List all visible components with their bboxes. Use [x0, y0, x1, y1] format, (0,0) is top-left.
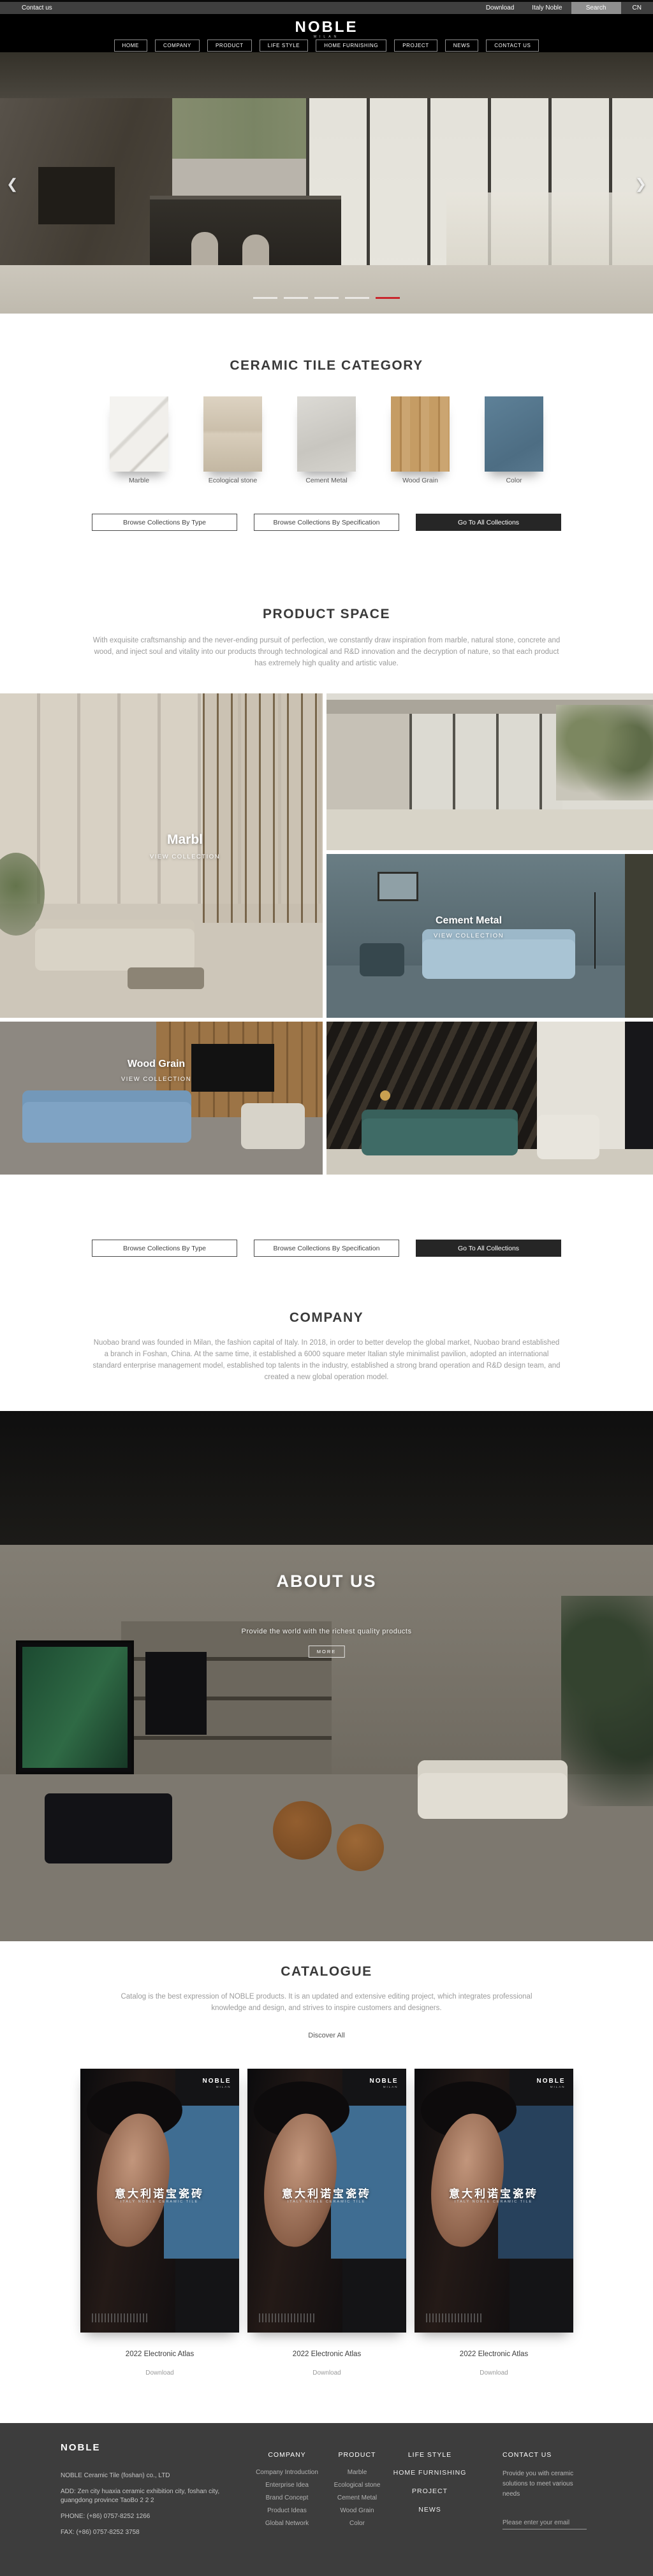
product-space-title: PRODUCT SPACE [0, 607, 653, 622]
poster-headline: 意大利诺宝瓷砖 [247, 2185, 406, 2201]
footer-header-life-style[interactable]: LIFE STYLE [383, 2451, 477, 2459]
browse-by-type-button[interactable]: Browse Collections By Type [92, 514, 237, 531]
tile-label-ecological-stone: Ecological stone [203, 477, 262, 484]
noble-logo[interactable]: NOBLE [0, 20, 653, 35]
card-concrete-wall [326, 714, 409, 809]
poster-brand-sub: MILAN [216, 2085, 231, 2088]
card-coffee-table [128, 967, 204, 989]
poster-barcode [259, 2313, 316, 2322]
poster-brand: NOBLE [370, 2078, 399, 2085]
card-chair [360, 943, 404, 976]
nav-contact-us[interactable]: CONTACT US [486, 40, 539, 52]
discover-all-link[interactable]: Discover All [0, 2032, 653, 2039]
view-collection-link[interactable]: VIEW COLLECTION [434, 932, 504, 939]
tile-label-wood-grain: Wood Grain [391, 477, 450, 484]
about-tv-screen-small [145, 1652, 207, 1735]
about-sofa [418, 1760, 568, 1819]
card-tv [191, 1044, 274, 1092]
poster-headline: 意大利诺宝瓷砖 [80, 2185, 239, 2201]
card-floor-lamp [594, 892, 596, 969]
card-sofa [35, 920, 194, 971]
company-description: Nuobao brand was founded in Milan, the f… [91, 1337, 562, 1383]
card-glass-wall [409, 714, 562, 809]
poster-subline: ITALY NOBLE CERAMIC TILE [80, 2200, 239, 2204]
category-tile-wood-grain[interactable] [391, 396, 450, 472]
site-header: NOBLE MILAN HOME COMPANY PRODUCT LIFE ST… [0, 14, 653, 52]
about-us-caption: Provide the world with the richest quali… [0, 1628, 653, 1635]
footer-fax: FAX: (+86) 0757-8252 3758 [61, 2528, 220, 2537]
go-to-all-collections-button[interactable]: Go To All Collections [416, 1240, 561, 1257]
carousel-dot[interactable] [284, 297, 308, 299]
catalogue-item-title: 2022 Electronic Atlas [80, 2350, 239, 2358]
poster-headline: 意大利诺宝瓷砖 [415, 2185, 573, 2201]
category-tile-ecological-stone[interactable] [203, 396, 262, 472]
catalogue-poster-row: NOBLE MILAN 意大利诺宝瓷砖 ITALY NOBLE CERAMIC … [0, 2069, 653, 2333]
italy-noble-link[interactable]: Italy Noble [523, 4, 571, 11]
language-toggle-cn[interactable]: CN [621, 4, 653, 11]
about-us-title: ABOUT US [0, 1572, 653, 1591]
product-space-card-dark-slat[interactable] [326, 1022, 653, 1175]
product-space-card-exterior[interactable] [326, 693, 653, 850]
footer-logo[interactable]: NOBLE [61, 2442, 101, 2453]
download-link[interactable]: Download [477, 4, 523, 11]
company-title: COMPANY [0, 1310, 653, 1326]
poster-blue-panel [164, 2106, 239, 2259]
view-collection-link[interactable]: VIEW COLLECTION [121, 1076, 191, 1083]
about-coffee-table [273, 1801, 332, 1860]
about-coffee-table [337, 1824, 384, 1871]
category-tile-color[interactable] [485, 396, 543, 472]
ceramic-tile-category-title: CERAMIC TILE CATEGORY [0, 358, 653, 373]
nav-life-style[interactable]: LIFE STYLE [260, 40, 308, 52]
nav-home-furnishing[interactable]: HOME FURNISHING [316, 40, 386, 52]
footer-header-contact-us[interactable]: CONTACT US [503, 2451, 592, 2459]
footer-link-project[interactable]: PROJECT [383, 2487, 477, 2495]
poster-subline: ITALY NOBLE CERAMIC TILE [247, 2200, 406, 2204]
poster-brand: NOBLE [537, 2078, 566, 2085]
footer-address: ADD: Zen city huaxia ceramic exhibition … [61, 2487, 220, 2505]
footer-link-news[interactable]: NEWS [383, 2506, 477, 2514]
carousel-dot[interactable] [314, 297, 339, 299]
product-space-card-wood-grain[interactable]: Wood Grain VIEW COLLECTION [0, 1022, 323, 1175]
view-collection-link[interactable]: VIEW COLLECTION [150, 853, 220, 860]
noble-logo-subtitle: MILAN [0, 35, 653, 39]
carousel-prev-icon[interactable]: ❮ [6, 177, 18, 191]
card-label-wood-grain: Wood Grain [121, 1059, 191, 1070]
catalogue-item-title: 2022 Electronic Atlas [247, 2350, 406, 2358]
product-space-description: With exquisite craftsmanship and the nev… [91, 635, 562, 669]
carousel-pagination [0, 297, 653, 299]
category-tile-cement-metal[interactable] [297, 396, 356, 472]
poster-brand-sub: MILAN [550, 2085, 566, 2088]
poster-barcode [92, 2313, 149, 2322]
hero-image-outdoor [446, 192, 653, 265]
footer-column-life-style: LIFE STYLE HOME FURNISHING PROJECT NEWS [383, 2451, 477, 2524]
poster-subline: ITALY NOBLE CERAMIC TILE [415, 2200, 573, 2204]
main-nav: HOME COMPANY PRODUCT LIFE STYLE HOME FUR… [0, 40, 653, 52]
footer-company-line: NOBLE Ceramic Tile (foshan) co., LTD [61, 2471, 220, 2480]
collection-buttons-row-1: Browse Collections By Type Browse Collec… [0, 514, 653, 531]
card-sofa [22, 1090, 191, 1143]
browse-by-type-button[interactable]: Browse Collections By Type [92, 1240, 237, 1257]
about-tv-screen [16, 1640, 134, 1774]
nav-product[interactable]: PRODUCT [207, 40, 252, 52]
catalogue-poster-3[interactable]: NOBLE MILAN 意大利诺宝瓷砖 ITALY NOBLE CERAMIC … [415, 2069, 573, 2333]
poster-blue-panel [331, 2106, 406, 2259]
catalogue-item-title: 2022 Electronic Atlas [415, 2350, 573, 2358]
poster-navy-panel [498, 2106, 573, 2259]
category-tile-labels: Marble Ecological stone Cement Metal Woo… [0, 477, 653, 484]
footer-column-contact: CONTACT US Provide you with ceramic solu… [503, 2451, 592, 2529]
catalogue-poster-2[interactable]: NOBLE MILAN 意大利诺宝瓷砖 ITALY NOBLE CERAMIC … [247, 2069, 406, 2333]
card-column [625, 854, 653, 1018]
poster-brand-sub: MILAN [383, 2085, 399, 2088]
category-tile-marble[interactable] [110, 396, 168, 472]
go-to-all-collections-button[interactable]: Go To All Collections [416, 514, 561, 531]
hero-image-stool [191, 232, 218, 269]
hero-image-ceiling [0, 52, 653, 98]
card-chair [537, 1115, 599, 1159]
hero-carousel: ❮ ❯ [0, 52, 653, 314]
nav-news[interactable]: NEWS [445, 40, 478, 52]
noble-homepage: Contact us Download Italy Noble Search C… [0, 0, 653, 2576]
carousel-dot-active[interactable] [376, 297, 400, 299]
collection-buttons-row-2: Browse Collections By Type Browse Collec… [0, 1240, 653, 1257]
card-label-cement-metal: Cement Metal [434, 915, 504, 927]
footer-phone: PHONE: (+86) 0757-8252 1266 [61, 2512, 220, 2521]
search-button[interactable]: Search [571, 2, 621, 14]
carousel-next-icon[interactable]: ❯ [635, 177, 647, 191]
card-ground [326, 809, 653, 850]
poster-barcode [426, 2313, 483, 2322]
catalogue-download-link[interactable]: Download [80, 2370, 239, 2377]
card-pendant-light [380, 1090, 390, 1101]
carousel-dot[interactable] [253, 297, 277, 299]
nav-company[interactable]: COMPANY [155, 40, 200, 52]
card-sofa [362, 1110, 518, 1155]
about-ceiling [0, 1411, 653, 1545]
poster-brand: NOBLE [203, 2078, 231, 2085]
tile-label-color: Color [485, 477, 543, 484]
browse-by-specification-button[interactable]: Browse Collections By Specification [254, 1240, 399, 1257]
hero-image-floor [0, 265, 653, 314]
catalogue-download-link[interactable]: Download [415, 2370, 573, 2377]
footer-company-info: NOBLE Ceramic Tile (foshan) co., LTD ADD… [61, 2471, 220, 2544]
catalogue-download-link[interactable]: Download [247, 2370, 406, 2377]
tile-label-marble: Marble [110, 477, 168, 484]
carousel-dot[interactable] [345, 297, 369, 299]
about-us-section: ABOUT US Provide the world with the rich… [0, 1411, 653, 1941]
top-utility-bar: Contact us Download Italy Noble Search C… [0, 0, 653, 14]
contact-us-link[interactable]: Contact us [22, 4, 52, 11]
product-space-card-cement-metal[interactable]: Cement Metal VIEW COLLECTION [326, 854, 653, 1018]
catalogue-description: Catalog is the best expression of NOBLE … [116, 1991, 537, 2014]
footer-link-home-furnishing[interactable]: HOME FURNISHING [383, 2469, 477, 2477]
browse-by-specification-button[interactable]: Browse Collections By Specification [254, 514, 399, 531]
catalogue-poster-1[interactable]: NOBLE MILAN 意大利诺宝瓷砖 ITALY NOBLE CERAMIC … [80, 2069, 239, 2333]
category-tile-row [0, 396, 653, 472]
tile-label-cement-metal: Cement Metal [297, 477, 356, 484]
nav-project[interactable]: PROJECT [394, 40, 437, 52]
footer-email-input[interactable] [503, 2517, 587, 2529]
nav-home[interactable]: HOME [114, 40, 147, 52]
card-bronze-screens [203, 693, 323, 923]
card-artwork [378, 872, 418, 901]
site-footer: NOBLE NOBLE Ceramic Tile (foshan) co., L… [0, 2423, 653, 2576]
card-chair [241, 1103, 305, 1149]
footer-contact-text: Provide you with ceramic solutions to me… [503, 2469, 592, 2500]
catalogue-title: CATALOGUE [0, 1964, 653, 1979]
hero-image-fireplace [38, 167, 115, 224]
card-trees [556, 705, 653, 800]
about-more-button[interactable]: MORE [309, 1646, 345, 1658]
product-space-card-marble[interactable]: Marbl VIEW COLLECTION [0, 693, 323, 1018]
card-label-marble: Marbl [150, 832, 220, 848]
about-bench [45, 1793, 172, 1863]
